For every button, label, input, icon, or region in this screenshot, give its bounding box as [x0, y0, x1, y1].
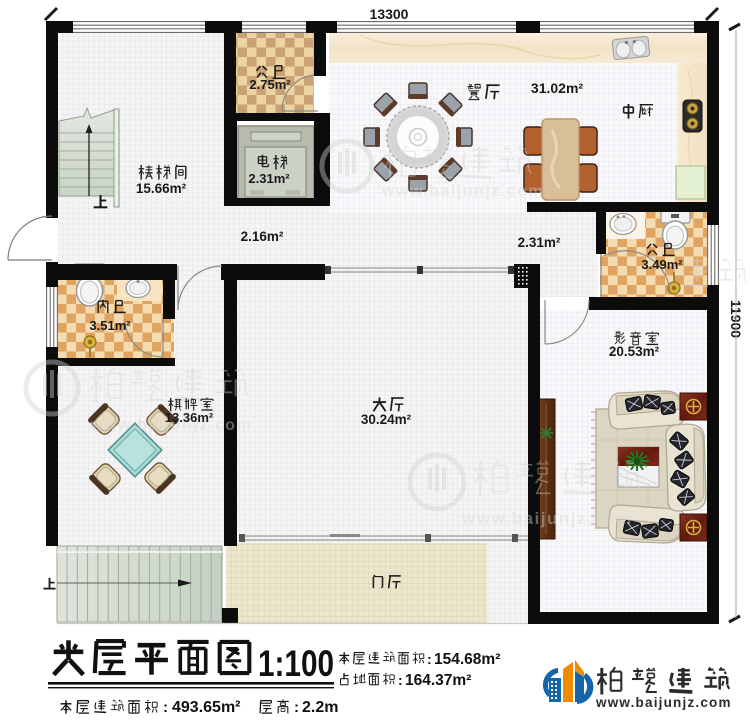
- svg-text:31.02m²: 31.02m²: [531, 80, 583, 96]
- svg-text::: :: [427, 651, 432, 667]
- svg-text:13300: 13300: [370, 6, 409, 22]
- svg-text:3.51m²: 3.51m²: [89, 318, 131, 333]
- svg-text:15.66m²: 15.66m²: [136, 181, 187, 196]
- svg-text:www.baijunjz.com: www.baijunjz.com: [461, 509, 633, 528]
- svg-text:www.baijunjz.com: www.baijunjz.com: [595, 695, 732, 710]
- svg-text:3.49m²: 3.49m²: [641, 257, 683, 272]
- svg-text:2.75m²: 2.75m²: [249, 77, 291, 92]
- svg-text:2.2m: 2.2m: [302, 699, 338, 716]
- svg-text:1:100: 1:100: [258, 643, 334, 684]
- svg-text:164.37m²: 164.37m²: [405, 672, 471, 689]
- svg-text::: :: [398, 672, 403, 688]
- svg-text:493.65m²: 493.65m²: [172, 699, 241, 716]
- svg-text:2.31m²: 2.31m²: [248, 171, 290, 186]
- svg-text:2.31m²: 2.31m²: [518, 235, 561, 250]
- svg-text:20.53m²: 20.53m²: [609, 344, 660, 359]
- svg-text:13.36m²: 13.36m²: [165, 410, 214, 425]
- svg-text:30.24m²: 30.24m²: [361, 412, 412, 427]
- svg-text:www.baijunjz.com: www.baijunjz.com: [381, 183, 544, 200]
- svg-text:2.16m²: 2.16m²: [241, 229, 284, 244]
- svg-text::: :: [163, 699, 168, 716]
- svg-text::: :: [294, 699, 299, 716]
- svg-text:154.68m²: 154.68m²: [434, 651, 500, 668]
